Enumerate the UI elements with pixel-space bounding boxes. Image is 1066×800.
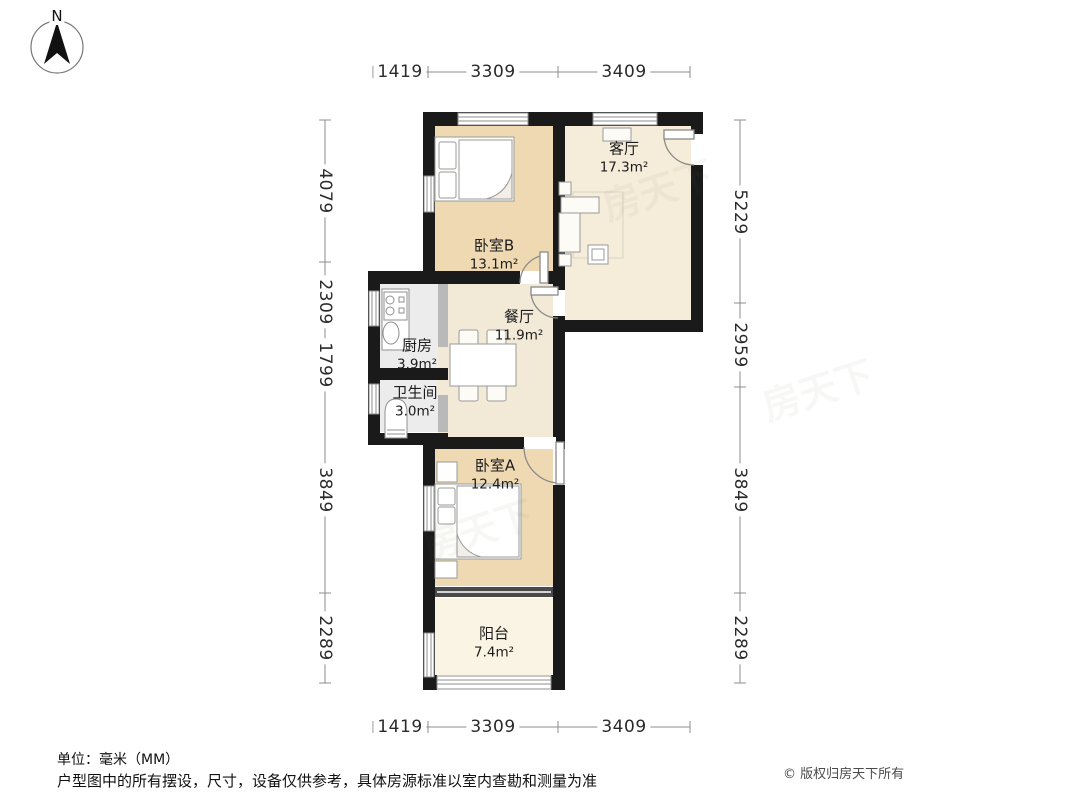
- dim-left-2: 2309: [315, 275, 335, 328]
- dim-left-3: 1799: [315, 338, 335, 391]
- dim-right-3: 3849: [730, 463, 750, 516]
- dim-bottom-2: 3309: [466, 717, 519, 737]
- bathroom-partition: [438, 395, 448, 432]
- dim-bottom-1: 1419: [373, 717, 426, 737]
- dim-left-1: 4079: [315, 164, 335, 217]
- dim-left-4: 3849: [315, 463, 335, 516]
- room-label-balcony: 阳台 7.4m²: [474, 624, 514, 661]
- footer-disclaimer: 户型图中的所有摆设，尺寸，设备仅供参考，具体房源标准以室内查勘和测量为准: [57, 770, 597, 791]
- wardrobe: [437, 462, 457, 482]
- dim-bottom-3: 3409: [597, 717, 650, 737]
- dim-left-5: 2289: [315, 611, 335, 664]
- room-name: 客厅: [600, 139, 649, 159]
- coffee-table: [588, 245, 608, 264]
- compass-needle: [44, 22, 70, 64]
- room-area: 7.4m²: [474, 644, 514, 662]
- room-label-dining: 餐厅 11.9m²: [495, 307, 544, 344]
- window-balcony-bottom: [437, 676, 551, 689]
- room-name: 阳台: [474, 624, 514, 644]
- room-name: 卧室A: [471, 456, 520, 476]
- compass-north-label: N: [49, 7, 64, 25]
- room-area: 3.9m²: [397, 356, 437, 374]
- chair: [459, 385, 478, 401]
- room-name: 餐厅: [495, 307, 544, 327]
- room-name: 卫生间: [392, 383, 437, 403]
- footer-unit-note: 单位：毫米（MM）: [57, 749, 179, 769]
- footer-copyright: © 版权归房天下所有: [783, 763, 904, 782]
- dim-top-3: 3409: [597, 62, 650, 82]
- nightstand: [435, 561, 457, 578]
- window-bedroom-a-left: [424, 486, 434, 531]
- floorplan-canvas: 房天下 房天下 房天下 N 客厅 17.3m² 卧室B 13.1m² 餐厅 11…: [0, 0, 1066, 800]
- side-table: [559, 254, 571, 266]
- kitchen-partition: [438, 284, 448, 347]
- bed-b: [435, 137, 514, 201]
- chair: [487, 385, 506, 401]
- compass: [31, 21, 83, 73]
- window-bathroom-left: [369, 384, 379, 414]
- dining-table: [450, 344, 516, 386]
- sofa-back: [561, 197, 599, 213]
- room-name: 卧室B: [470, 236, 519, 256]
- dim-right-1: 5229: [730, 185, 750, 238]
- room-area: 11.9m²: [495, 327, 544, 345]
- dim-top-2: 3309: [466, 62, 519, 82]
- window-kitchen-left: [369, 291, 379, 326]
- side-table: [559, 182, 571, 195]
- sofa-seat: [559, 213, 580, 252]
- room-label-bedroom-b: 卧室B 13.1m²: [470, 236, 519, 273]
- room-area: 12.4m²: [471, 476, 520, 494]
- room-area: 3.0m²: [392, 403, 437, 421]
- room-label-living: 客厅 17.3m²: [600, 139, 649, 176]
- dim-right-2: 2959: [730, 318, 750, 371]
- window-balcony-left: [424, 633, 434, 677]
- room-name: 厨房: [397, 336, 437, 356]
- floorplan-drawing: [0, 0, 1066, 800]
- dim-right-4: 2289: [730, 611, 750, 664]
- window-bedroom-b-left: [424, 176, 434, 212]
- room-label-bathroom: 卫生间 3.0m²: [392, 383, 437, 420]
- dim-top-1: 1419: [373, 62, 426, 82]
- room-area: 17.3m²: [600, 159, 649, 177]
- window-bedroom-b-top: [458, 113, 528, 125]
- window-living-top: [593, 113, 657, 125]
- room-label-bedroom-a: 卧室A 12.4m²: [471, 456, 520, 493]
- room-label-kitchen: 厨房 3.9m²: [397, 336, 437, 373]
- room-area: 13.1m²: [470, 256, 519, 274]
